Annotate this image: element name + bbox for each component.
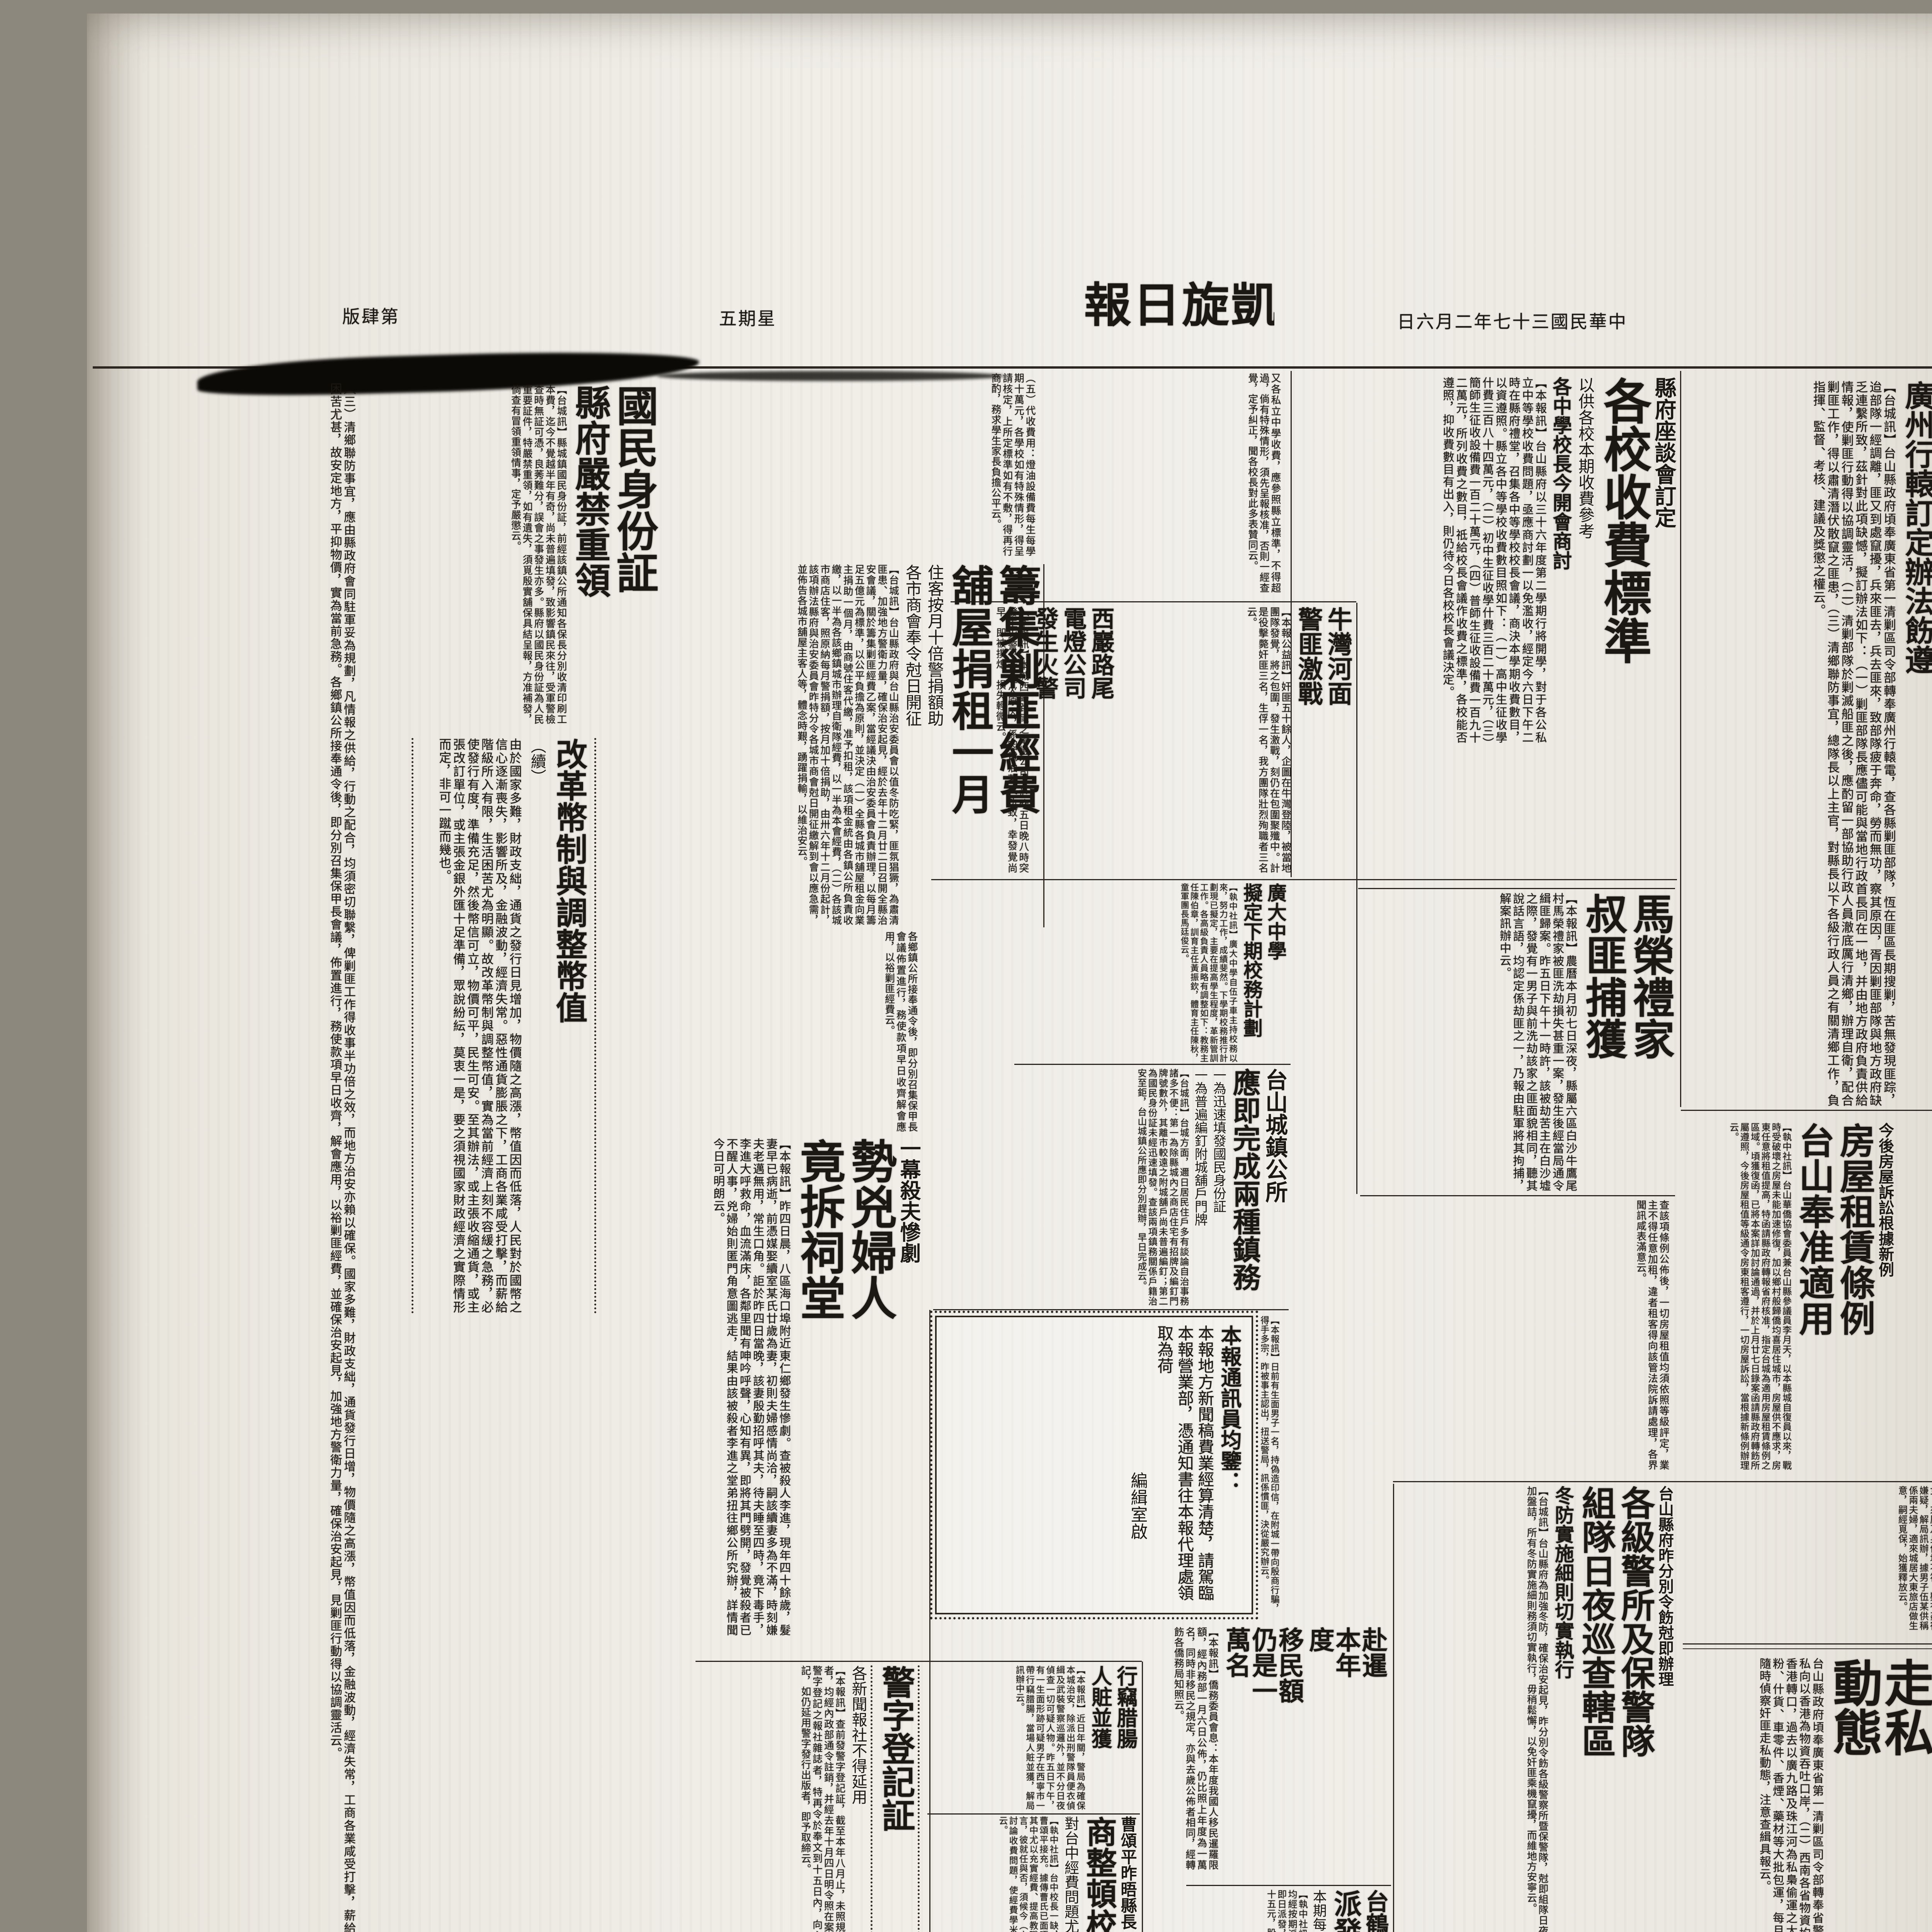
headline: 縣府嚴禁重領 <box>571 384 608 724</box>
headline: 各級警所及保警隊 <box>1617 1486 1652 1932</box>
headline: 西巖路尾 <box>1089 607 1113 873</box>
subheadline: 各市商會奉令尅日開征 <box>903 564 921 925</box>
kicker: 台山縣府昨分別令飭尅即辦理 <box>1656 1486 1673 1932</box>
article-body: 【本報訊】台山縣府以三十六年度第二學期行將開學，對于各公私立中等學校收費問題，亟… <box>1440 377 1546 744</box>
article-bandit-funds: 籌集剿匪經費 舖屋捐租一月 住客按月十倍警捐額助 各市商會奉令尅日開征 【台城訊… <box>663 564 1041 925</box>
subheadline: 本期每股五百四十五元 <box>1311 1889 1326 1932</box>
article-town-office: 台山城鎮公所 應即完成兩種鎮務 一為迅速填發國民身份証 一為普遍編釘附城舖戶門牌… <box>1014 1068 1291 1306</box>
headline: 赴暹本年度 <box>1306 1627 1385 1685</box>
column-rule <box>1186 1885 1391 1886</box>
article-body: 【本報訊】僑務委員會息：本年度我國人移民暹羅限額，經內務部一月六日公佈，仍比照上… <box>1173 1627 1219 1870</box>
subheadline: 一為普遍編釘附城舖戶門牌 <box>1192 1068 1207 1306</box>
kicker: 縣府座談會訂定 <box>1651 377 1675 744</box>
article-body: 【執中社訊】台中校長一缺，縣政府昨（五）日始正式發表曹頌平接充。據傳曹氏已面晤黃… <box>997 1816 1058 1932</box>
newspaper-page: 第肆版 星期五 凱旋日報 中華民國三十七年二月六日 清鄉剿匪部隊 應與地方聯繫 … <box>0 0 1932 1932</box>
column-rule <box>1683 1643 1932 1645</box>
column-rule <box>1358 888 1675 889</box>
continuation-column: 查該項條例公佈後，一切房屋租值均須依照等級評定，業主不得任意加租，違者租客得向該… <box>1362 1200 1673 1470</box>
headline: 警匪激戰 <box>1295 607 1321 873</box>
article-body: 各鄉鎮公所接奉通令後，即分別召集保甲長會議佈置進行，務使款項早日收齊解會應用，以… <box>883 931 918 1132</box>
headline: 馬榮禮家 <box>1628 893 1671 1192</box>
kicker: 一幕殺夫慘劇 <box>897 1138 920 1636</box>
article-body: （三）清鄉聯防事宜，應由縣政府會同駐軍妥為規劃，凡情報之供給，行動之配合，均須密… <box>328 383 355 1932</box>
article-body: 【本報公益訊】奸匪五十餘人，企圖在牛灣登陸，被當地團隊發覺，將之包圍，發生激戰，… <box>1245 607 1291 873</box>
headline: 勢兇婦人 <box>845 1138 893 1636</box>
headline: 警字登記証 <box>871 1665 920 1932</box>
weekday-label: 星期五 <box>717 309 774 336</box>
article-body: 又各私立中學收費，應參照縣立標準，不得超過，倘有特殊情形，須先呈報核准，否則一經… <box>1247 373 1281 593</box>
headline: 籌集剿匪經費 <box>994 564 1037 925</box>
article-body: 【本報訊】查前發警字登記証，截至本年八月止，未照規定辦理換領手續者，均經內政部通… <box>799 1665 845 1932</box>
headline: 組隊日夜巡查轄區 <box>1578 1486 1613 1932</box>
headline: 移民額仍是一萬名 <box>1222 1627 1302 1712</box>
article-body: 台山縣政府頃奉廣東省第一清剿區司令部轉奉省警保處電開：（一）華南走私向以香港為物… <box>1757 1658 1823 1932</box>
article-id-card: 國民身份証 縣府嚴禁重領 【台城訊】縣城鎮國民身份証，前經該鎮公所通知各保長分別… <box>369 384 659 724</box>
column-rule <box>1683 1648 1932 1649</box>
masthead-title: 凱旋日報 <box>1078 280 1274 346</box>
headline: 房屋租賃條例 <box>1835 1122 1872 1470</box>
headline: 台山奉准適用 <box>1795 1122 1832 1470</box>
article-south-smuggling: 台山縣政府飭屬注意查緝 華南奸匪 走私動態 台山縣政府頃奉廣東省第一清剿區司令部… <box>1685 1658 1932 1932</box>
headline: 舖屋捐租一月 <box>947 564 990 925</box>
article-police-patrol: 台山縣府昨分別令飭尅即辦理 各級警所及保警隊 組隊日夜巡查轄區 冬防實施細則切實… <box>1397 1486 1677 1932</box>
subheadline: 各新聞報社不得延用 <box>849 1665 867 1932</box>
article-body: 【台城訊】台城方面，邇日居民住戶多有談論自治事務諸多不便：第一為除縣城內之商店住… <box>1135 1068 1188 1306</box>
article-body: 【台城訊】台山縣政府與台山縣治安委員會以值冬防吃緊，匪氛猖獗，為肅清匪患、加強地… <box>796 564 899 925</box>
subheadline: 冬防實施細則切實執行 <box>1552 1486 1574 1932</box>
kicker: 今後房屋訴訟根據新例 <box>1876 1122 1893 1470</box>
headline: 擬定下期校務計劃 <box>1242 883 1262 1045</box>
article-body: 【本報訊】昨四日晨，八區海口埠附近東仁鄉發生慘劇。查被殺人李進，現年四十餘歲，髮… <box>711 1138 790 1636</box>
headline: 廣大中學 <box>1265 883 1286 1063</box>
headline: 叔匪捕獲 <box>1580 893 1624 1192</box>
article-body: 由於國家多難，財政支絀，通貨之發行日見增加，物價隨之高漲，幣值因而低落，人民對於… <box>437 738 522 1314</box>
article-body: 【台城訊】台山縣府為加強冬防，確保治安起見，昨分別令飭各級警察所暨保警隊，尅即組… <box>1526 1486 1548 1932</box>
column-rule <box>927 1813 1140 1815</box>
subheadline: 對台中經費問題尤重要 <box>1062 1816 1078 1932</box>
continuation-column: 又各私立中學收費，應參照縣立標準，不得超過，倘有特殊情形，須先呈報核准，否則一經… <box>952 373 1285 593</box>
article-police-register-cert: 警字登記証 各新聞報社不得延用 【本報訊】查前發警字登記証，截至本年八月止，未照… <box>697 1665 923 1932</box>
date-label: 中華民國三十七年二月六日 <box>1395 312 1625 339</box>
kicker: 曹頌平昨晤縣長 <box>1118 1816 1136 1932</box>
article-husband-murder: 一幕殺夫慘劇 勢兇婦人 竟拆祠堂 【本報訊】昨四日晨，八區海口埠附近東仁鄉發生慘… <box>587 1138 923 1636</box>
column-rule <box>1014 1064 1291 1065</box>
article-lead: 清鄉剿匪部隊 應與地方聯繫 廣州行轅訂定辦法飭遵 【台城訊】台山縣政府頃奉廣東省… <box>1685 381 1932 1107</box>
subheadline: 廣州行轅訂定辦法飭遵 <box>1900 381 1932 1107</box>
subheadline: 各中學校長今開會商討 <box>1550 377 1571 744</box>
headline: 電燈公司 <box>1061 607 1085 873</box>
article-body: 【執中社訊】廣大中學自伍子車主持校務以來，努力工作，成績斐然。下學期校務推行計劃… <box>1180 883 1238 1063</box>
article-body: 【本報訊】近日年關，警局為確保本城治安，除派出刑警隊員便衣偵緝及武裝警察巡邏外，… <box>1014 1665 1085 1810</box>
article-housing-rules: 今後房屋訴訟根據新例 房屋租賃條例 台山奉准適用 【執中社訊】台山華僑協會委員兼… <box>1685 1122 1897 1470</box>
article-currency-essay: 改革幣制與調整幣值 （續） 由於國家多難，財政支絀，通貨之發行日見增加，物價隨之… <box>412 738 596 1314</box>
article-body: 【本報訊】日前有生面男子一名，持偽造印信，在附城一帶向殷商行騙，得手多宗，昨被事… <box>1259 1316 1279 1613</box>
article-body: 查該項條例公佈後，一切房屋租值均須依照等級評定，業主不得任意加租，違者租客得向該… <box>1635 1200 1669 1470</box>
article-niuwan-battle: 牛灣河面 警匪激戰 【本報公益訊】奸匪五十餘人，企圖在牛灣登陸，被當地團隊發覺，… <box>1122 607 1354 873</box>
continuation-column: 【本報訊】日前有生面男子一名，持偽造印信，在附城一帶向殷商行騙，得手多宗，昨被事… <box>1155 1316 1283 1613</box>
headline: 走私動態 <box>1827 1658 1930 1774</box>
headline: 台鶴路董事會 <box>1363 1889 1387 1932</box>
article-marong-robbery: 馬榮禮家 叔匪捕獲 【本報訊】農曆本月初七日深夜，縣屬六區白沙牛鷹尾村馬榮禮家被… <box>1360 893 1675 1192</box>
column-rule <box>696 1661 1142 1662</box>
headline: 人賍並獲 <box>1089 1665 1111 1810</box>
article-body: 【台城訊】台山縣政府頃奉廣東省第一清剿區司令部轉奉廣州行轅電，查各縣剿匪部隊，恆… <box>1811 381 1896 1107</box>
article-siam-migration: 赴暹本年度 移民額仍是一萬名 【本報訊】僑務委員會息：本年度我國人移民暹羅限額，… <box>1146 1627 1389 1870</box>
article-body: 【執中社訊】台鶴公路自卅五年十二月恢復行車以來，各月路租均經按期派發各鄉公樑股東… <box>1265 1889 1307 1932</box>
headline: 各校收費標準 <box>1597 377 1647 744</box>
article-body: 【執中社訊】台山華僑協會委員兼台山縣參議員李月天，以本縣城自復員以來，戰時受破壞… <box>1728 1122 1791 1470</box>
headline: 行竊腊腸 <box>1114 1665 1136 1810</box>
continuation-column: （三）清鄉聯防事宜，應由縣政府會同駐軍妥為規劃，凡情報之供給，行動之配合，均須密… <box>122 383 359 1932</box>
edition-label: 第肆版 <box>340 307 398 334</box>
headline: 應即完成兩種鎮務 <box>1229 1068 1258 1306</box>
headline: 派發第三期路息 <box>1330 1889 1359 1932</box>
subheadline: 一為迅速填發國民身份証 <box>1211 1068 1225 1306</box>
continuation-column: 各鄉鎮公所接奉通令後，即分別召集保甲長會議佈置進行，務使款項早日收齊解會應用，以… <box>699 931 922 1132</box>
article-guangda-school: 廣大中學 擬定下期校務計劃 【執中社訊】廣大中學自伍子車主持校務以來，努力工作，… <box>1180 883 1289 1063</box>
article-sausage-theft: 行竊腊腸 人賍並獲 【本報訊】近日年關，警局為確保本城治安，除派出刑警隊員便衣偵… <box>925 1665 1140 1810</box>
column-rule <box>1680 371 1681 1107</box>
column-rule <box>1393 1484 1394 1932</box>
headline: 竟拆祠堂 <box>794 1138 842 1636</box>
column-rule <box>1681 1110 1932 1111</box>
essay-note: （續） <box>526 738 548 1314</box>
kicker: 台山城鎮公所 <box>1262 1068 1287 1306</box>
headline: 改革幣制與調整幣值 <box>552 738 585 1314</box>
headline: 商整頓校務計劃 <box>1082 1816 1114 1932</box>
article-taihe-road: 台鶴路董事會 派發第三期路息 本期每股五百四十五元 【執中社訊】台鶴公路自卅五年… <box>1188 1889 1391 1932</box>
column-rule <box>1360 1195 1675 1196</box>
column-rule <box>1393 1481 1932 1482</box>
headline: 國民身份証 <box>612 384 655 724</box>
article-body: 【台城訊】縣城鎮國民身份証，前經該鎮公所通知各保長分別收清印刷工本費，迄今不覺越… <box>510 384 567 724</box>
headline: 牛灣河面 <box>1325 607 1350 873</box>
notice-signature: 編緝室啟 <box>1125 1325 1150 1605</box>
subheadline: 以供各校本期收費參考 <box>1575 377 1594 744</box>
article-couple-suspect: 一對男女 姦宿嫌疑 拘留訊問後保釋放 【本報訊】縣警察局昨派長警分赴各旅店客棧查… <box>1685 1486 1932 1631</box>
column-rule <box>1142 1662 1143 1932</box>
subheadline: 住客按月十倍警捐額助 <box>925 564 943 925</box>
column-rule <box>933 1309 1289 1310</box>
article-body: 【本報訊】農曆本月初七日深夜，縣屬六區白沙牛鷹尾村馬榮禮家被匪洗劫損失甚重一案，… <box>1497 893 1577 1192</box>
article-body: 【本報訊】縣警察局昨派長警分赴各旅店客棧查房，於城革新路大東旅店三樓○六號房，盤… <box>1896 1486 1932 1631</box>
article-cao-school-plan: 曹頌平昨晤縣長 商整頓校務計劃 對台中經費問題尤重要 【執中社訊】台中校長一缺，… <box>927 1816 1140 1932</box>
